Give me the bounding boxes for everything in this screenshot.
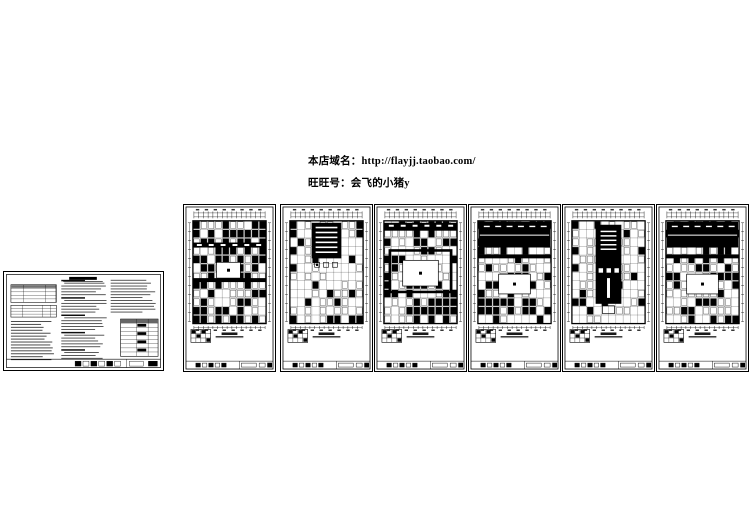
floor-plan-drawing-2 (281, 205, 372, 371)
floor-plan-sheet-5 (562, 204, 655, 372)
floor-plan-drawing-5 (563, 205, 654, 371)
floor-plan-drawing-3 (375, 205, 466, 371)
floor-plan-sheet-4 (468, 204, 561, 372)
cad-drawing-listing: 本店域名：http://flayjj.taobao.com/ 旺旺号：会飞的小猪… (0, 0, 749, 530)
design-notes-sheet (3, 271, 164, 371)
floor-plan-drawing-6 (657, 205, 748, 371)
floor-plan-drawing-1 (184, 205, 275, 371)
floor-plan-sheet-2 (280, 204, 373, 372)
shop-domain-text: 本店域名：http://flayjj.taobao.com/ (308, 151, 476, 173)
shop-wangwang-text: 旺旺号：会飞的小猪y (308, 173, 476, 195)
floor-plan-drawing-4 (469, 205, 560, 371)
shop-info: 本店域名：http://flayjj.taobao.com/ 旺旺号：会飞的小猪… (308, 151, 476, 195)
floor-plan-sheet-1 (183, 204, 276, 372)
design-notes-drawing (4, 272, 163, 370)
floor-plan-sheet-3 (374, 204, 467, 372)
floor-plan-sheet-6 (656, 204, 749, 372)
